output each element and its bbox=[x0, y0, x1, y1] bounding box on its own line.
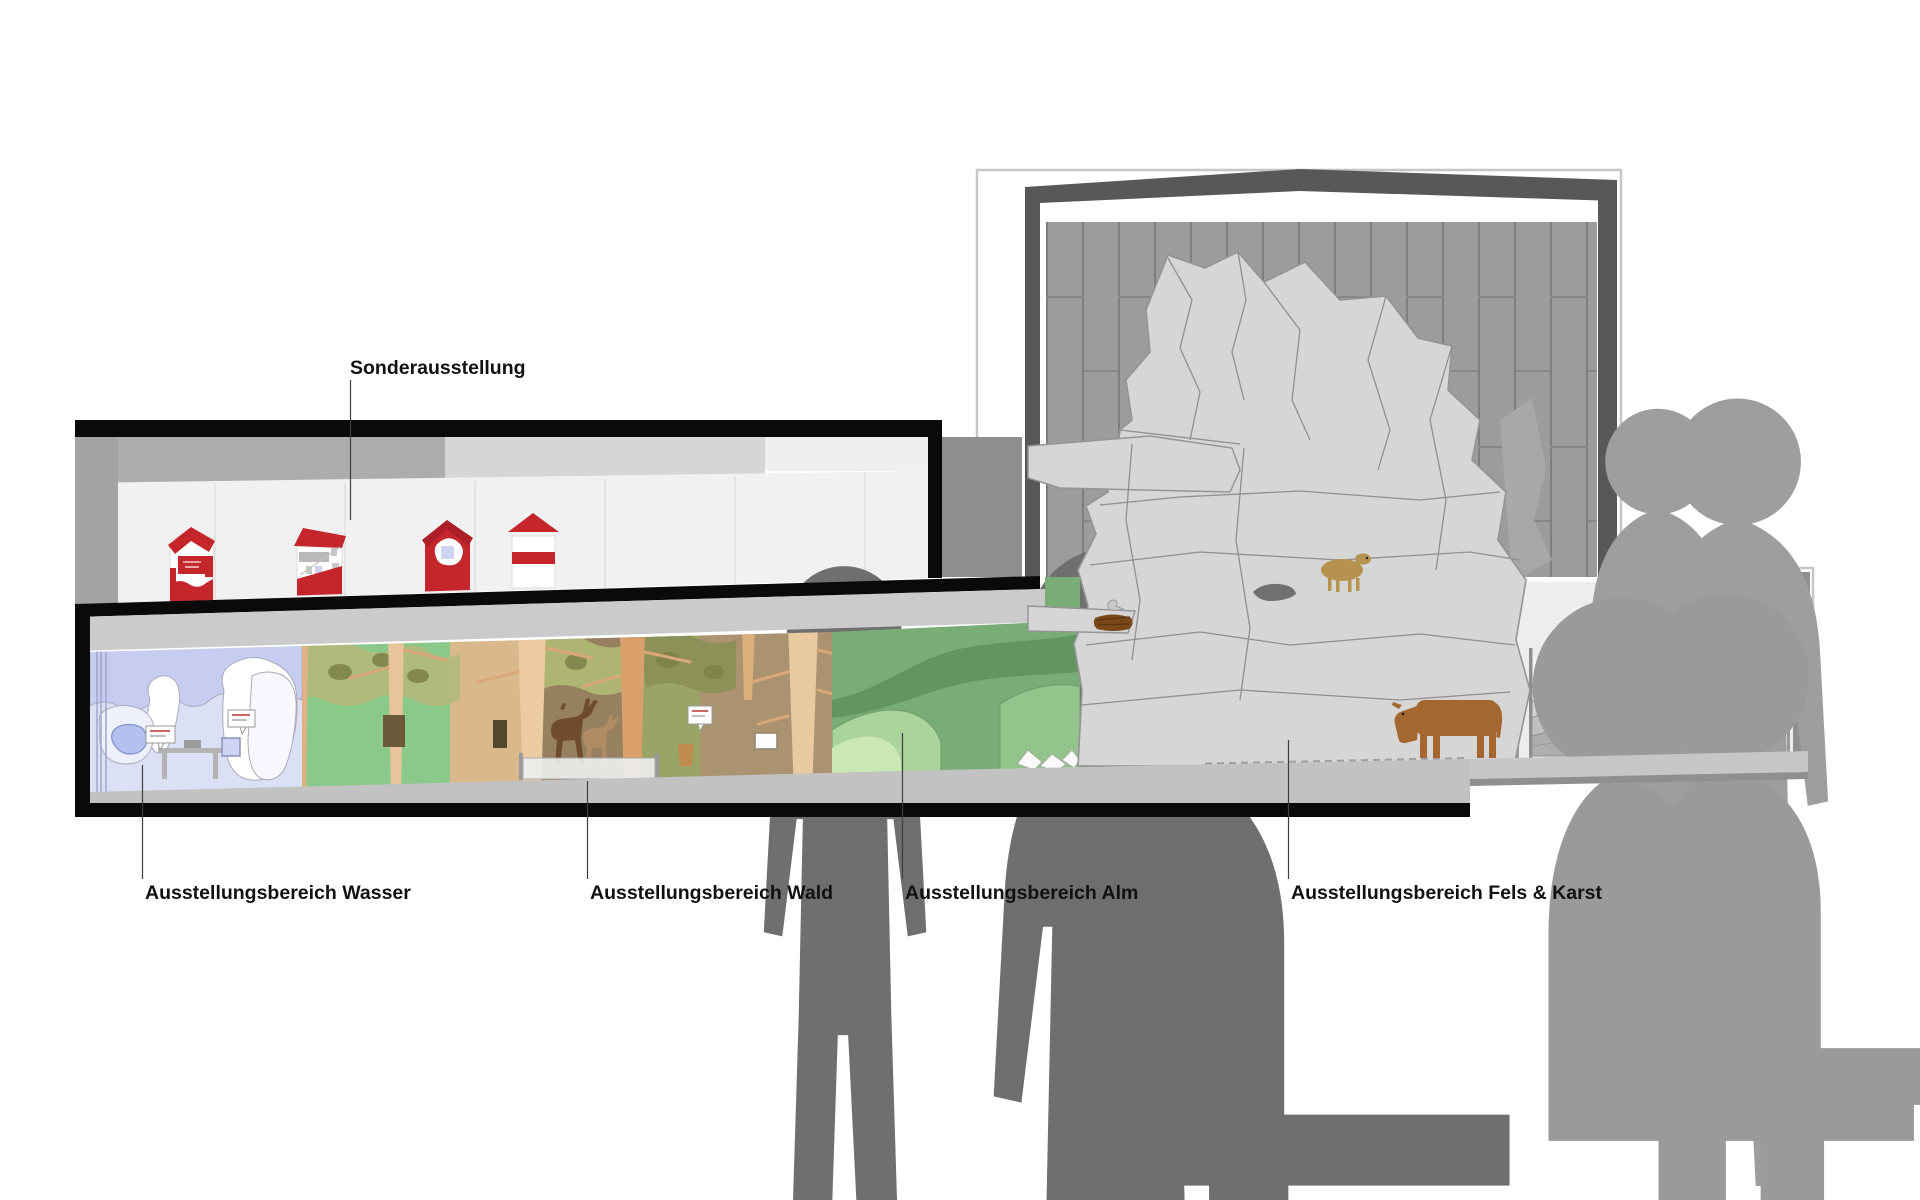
link-block bbox=[942, 437, 1022, 577]
rock-ledge-upper bbox=[1028, 436, 1240, 492]
exhibit-board bbox=[493, 720, 507, 748]
label-wasser: Ausstellungsbereich Wasser bbox=[145, 882, 411, 904]
exhibit-stand-1 bbox=[168, 527, 215, 602]
roof-slab bbox=[75, 420, 942, 437]
stand-text-plate bbox=[178, 556, 206, 574]
left-end-wall bbox=[75, 437, 118, 609]
backwall-strip-light bbox=[765, 437, 928, 471]
label-wald: Ausstellungsbereich Wald bbox=[590, 882, 833, 904]
right-wall bbox=[928, 437, 942, 578]
hall-right-column bbox=[1598, 181, 1617, 577]
foundation-slab bbox=[75, 803, 1470, 817]
stool bbox=[678, 744, 694, 766]
hall-left-column bbox=[1025, 190, 1040, 577]
label-fels-karst: Ausstellungsbereich Fels & Karst bbox=[1291, 882, 1603, 904]
mural-post bbox=[1529, 648, 1533, 758]
label-sonderausstellung: Sonderausstellung bbox=[350, 357, 526, 379]
exhibit-board bbox=[383, 715, 405, 747]
backwall-strip-dark bbox=[75, 437, 445, 483]
section-canvas: Sonderausstellung Ausstellungsbereich Wa… bbox=[0, 0, 1920, 1200]
architectural-section-drawing: Sonderausstellung Ausstellungsbereich Wa… bbox=[0, 0, 1920, 1200]
left-wall bbox=[75, 615, 90, 818]
label-alm: Ausstellungsbereich Alm bbox=[905, 882, 1138, 904]
framed-picture bbox=[755, 733, 777, 749]
framed-picture bbox=[222, 738, 240, 756]
hall-roof-band bbox=[1025, 169, 1617, 203]
exhibit-stand-2 bbox=[294, 528, 346, 596]
